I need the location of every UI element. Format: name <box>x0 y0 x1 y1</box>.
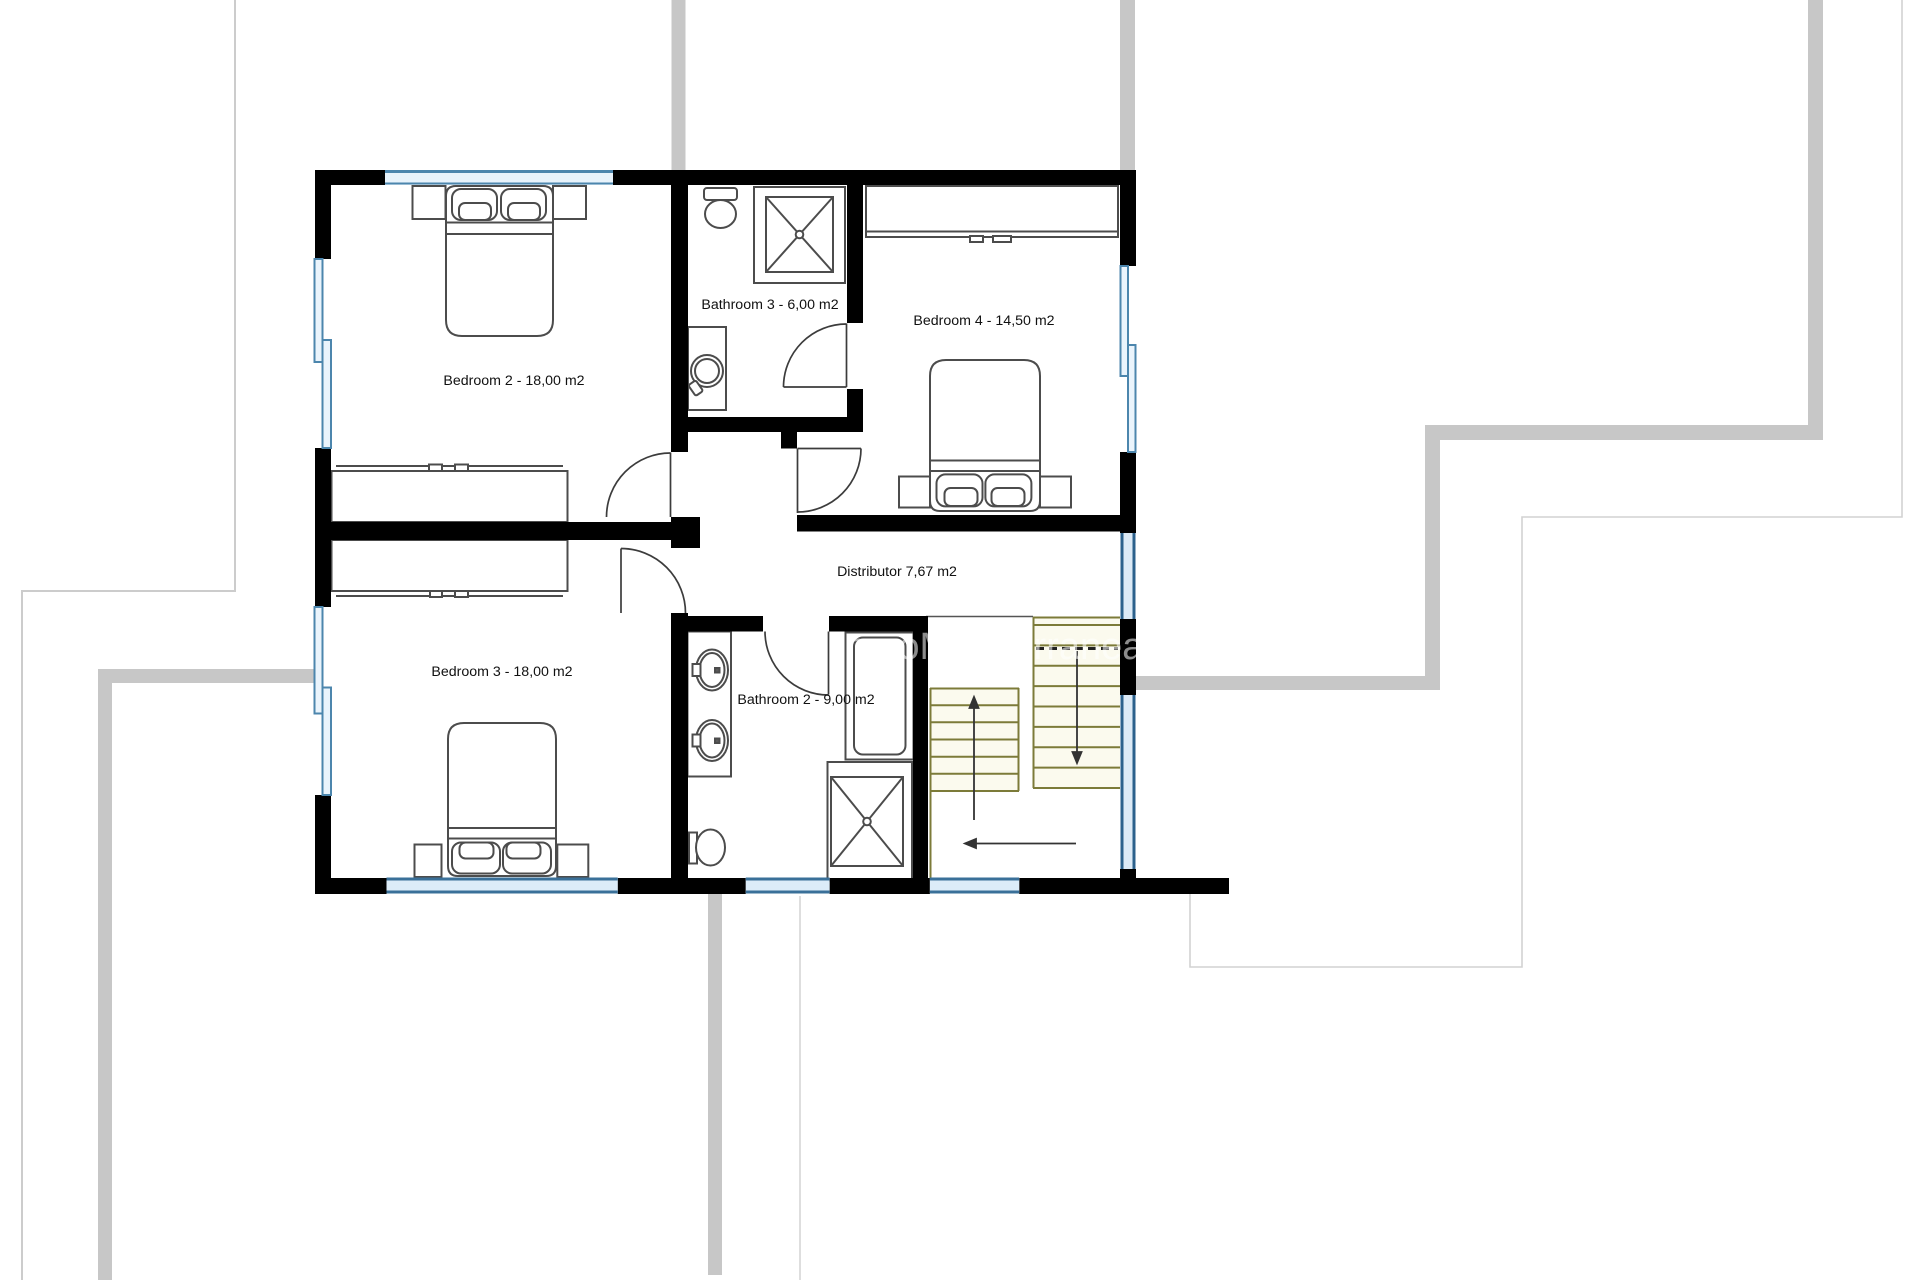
svg-text:Bathroom 3 - 6,00 m2: Bathroom 3 - 6,00 m2 <box>701 297 838 313</box>
svg-text:InmoMediterranea: InmoMediterranea <box>835 626 1144 668</box>
svg-text:Bedroom 3 - 18,00 m2: Bedroom 3 - 18,00 m2 <box>431 664 572 680</box>
svg-text:Bedroom 2 - 18,00 m2: Bedroom 2 - 18,00 m2 <box>443 373 584 389</box>
svg-text:Bedroom 4 - 14,50 m2: Bedroom 4 - 14,50 m2 <box>913 313 1054 329</box>
svg-text:Distributor 7,67 m2: Distributor 7,67 m2 <box>837 564 957 580</box>
svg-text:Bathroom 2 - 9,00 m2: Bathroom 2 - 9,00 m2 <box>737 692 874 708</box>
